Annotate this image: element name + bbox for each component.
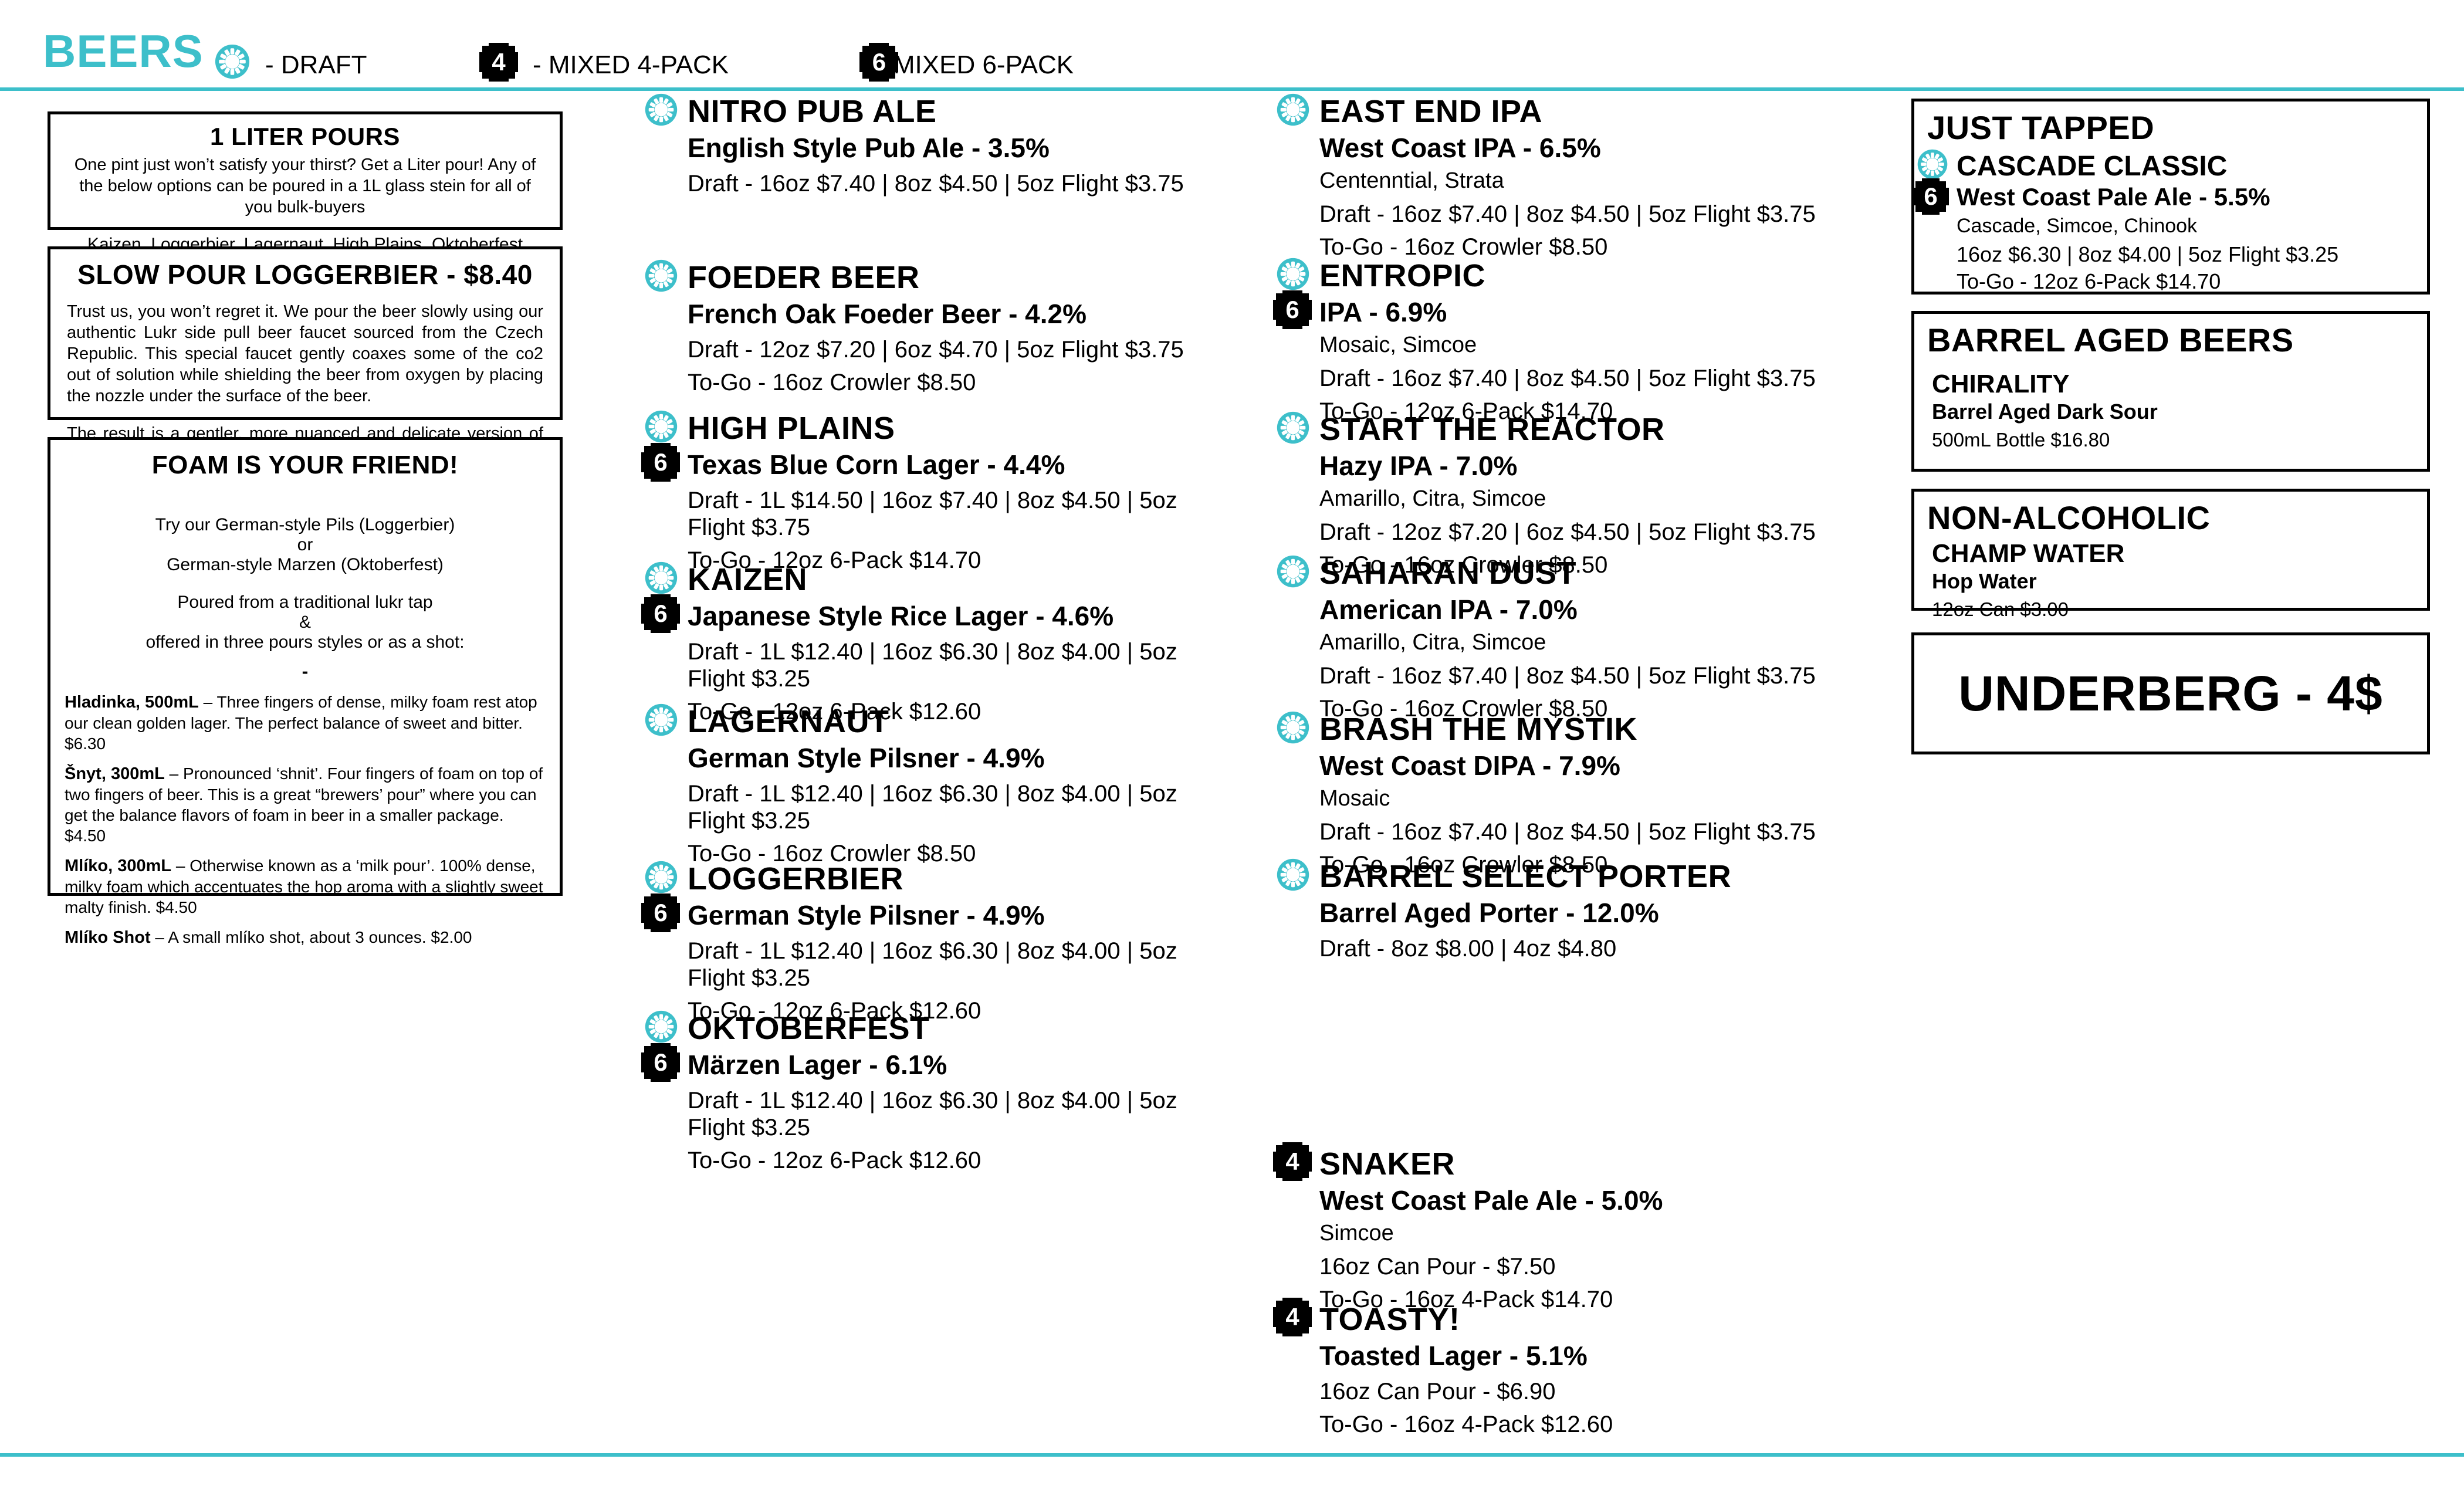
beer-name: NITRO PUB ALE [688,94,1207,129]
underberg-title: UNDERBERG - 4$ [1958,665,2382,722]
beer-price: Draft - 16oz $7.40 | 8oz $4.50 | 5oz Fli… [1319,818,1839,845]
header-divider [0,87,2464,91]
beer-style: Barrel Aged Dark Sour [1932,400,2158,424]
beer-style: Hop Water [1932,569,2124,594]
beer-name: EAST END IPA [1319,94,1839,129]
slow-pour-title: SLOW POUR LOGGERBIER - $8.40 [50,259,560,290]
beer-name: START THE REACTOR [1319,412,1839,447]
beer-item-champ-water: CHAMP WATER Hop Water 12oz Can $3.00 [1932,540,2124,621]
beer-item-saharan-dust: SAHARAN DUST American IPA - 7.0% Amarill… [1276,556,1839,722]
one-liter-pours-body: One pint just won’t satisfy your thirst?… [66,154,544,218]
beer-price: 12oz Can $3.00 [1932,598,2124,621]
slow-pour-paragraph-1: Trust us, you won’t regret it. We pour t… [67,301,543,407]
beer-hops: Amarillo, Citra, Simcoe [1319,486,1839,512]
beer-name: TOASTY! [1319,1302,1839,1337]
beer-name: FOEDER BEER [688,260,1207,295]
beer-style: English Style Pub Ale - 3.5% [688,133,1207,163]
just-tapped-box: JUST TAPPED 6 CASCADE CLASSIC West Coast… [1911,99,2430,295]
mixed-4-pack-badge-icon: 4 [482,46,515,79]
pour-style-hladinka: Hladinka, 500mL – Three fingers of dense… [65,692,546,754]
mixed-6-pack-badge-icon: 6 [1915,181,1946,212]
beer-style: American IPA - 7.0% [1319,594,1839,625]
beer-name: OKTOBERFEST [688,1011,1207,1046]
beer-item-oktoberfest: 6 OKTOBERFEST Märzen Lager - 6.1% Draft … [644,1011,1207,1174]
beer-style: West Coast IPA - 6.5% [1319,133,1839,163]
beer-name: ENTROPIC [1319,258,1839,293]
beer-style: West Coast Pale Ale - 5.5% [1957,184,2414,211]
beer-name: LOGGERBIER [688,861,1207,896]
mixed-6-pack-badge-icon: 6 [644,446,677,479]
barrel-aged-beers-title: BARREL AGED BEERS [1927,321,2427,359]
beer-price: Draft - 1L $12.40 | 16oz $6.30 | 8oz $4.… [688,780,1207,834]
foam-box: FOAM IS YOUR FRIEND! Try our German-styl… [48,437,563,896]
beer-item-start-the-reactor: START THE REACTOR Hazy IPA - 7.0% Amaril… [1276,412,1839,578]
mixed-6-pack-badge-icon: 6 [644,896,677,929]
pour-style-mliko-shot: Mlíko Shot – A small mlíko shot, about 3… [65,927,546,948]
beer-menu-board: BEERS - DRAFT 4 - MIXED 4-PACK 6 - MIXED… [0,0,2464,1496]
beer-hops: Amarillo, Citra, Simcoe [1319,629,1839,655]
beer-style: Barrel Aged Porter - 12.0% [1319,898,1839,928]
beer-price: Draft - 8oz $8.00 | 4oz $4.80 [1319,935,1839,962]
beer-price: 16oz $6.30 | 8oz $4.00 | 5oz Flight $3.2… [1957,242,2414,267]
legend-draft-label: - DRAFT [265,50,367,80]
beer-name: CASCADE CLASSIC [1957,151,2414,182]
beer-togo-price: To-Go - 12oz 6-Pack $12.60 [688,1147,1207,1174]
beer-price: Draft - 1L $14.50 | 16oz $7.40 | 8oz $4.… [688,487,1207,541]
foam-line-5: & [50,612,560,632]
beer-price: Draft - 1L $12.40 | 16oz $6.30 | 8oz $4.… [688,638,1207,692]
beer-price: Draft - 1L $12.40 | 16oz $6.30 | 8oz $4.… [688,1087,1207,1141]
mixed-6-pack-badge-icon: 6 [1276,293,1309,326]
beer-style: Texas Blue Corn Lager - 4.4% [688,449,1207,480]
beer-item-east-end-ipa: EAST END IPA West Coast IPA - 6.5% Cente… [1276,94,1839,260]
beer-style: Märzen Lager - 6.1% [688,1050,1207,1080]
beer-name: SNAKER [1319,1146,1839,1182]
beer-hops: Mosaic [1319,786,1839,811]
beer-hops: Centenntial, Strata [1319,168,1839,194]
beer-togo-price: To-Go - 16oz 4-Pack $12.60 [1319,1411,1839,1438]
beer-style: Toasted Lager - 5.1% [1319,1341,1839,1371]
mixed-4-pack-badge-icon: 4 [1276,1145,1309,1178]
mixed-4-pack-badge-icon: 4 [1276,1301,1309,1333]
beer-item-nitro-pub-ale: NITRO PUB ALE English Style Pub Ale - 3.… [644,94,1207,197]
beer-hops: Mosaic, Simcoe [1319,332,1839,358]
beer-name: BARREL SELECT PORTER [1319,859,1839,894]
legend-mixed-4-pack-label: - MIXED 4-PACK [533,50,729,80]
beer-item-loggerbier: 6 LOGGERBIER German Style Pilsner - 4.9%… [644,861,1207,1024]
mixed-6-pack-badge-icon: 6 [644,597,677,630]
beer-item-chirality: CHIRALITY Barrel Aged Dark Sour 500mL Bo… [1932,370,2158,451]
beer-price: Draft - 12oz $7.20 | 6oz $4.50 | 5oz Fli… [1319,519,1839,546]
mixed-6-pack-badge-icon: 6 [644,1046,677,1079]
beer-style: French Oak Foeder Beer - 4.2% [688,299,1207,329]
beer-name: BRASH THE MYSTIK [1319,712,1839,747]
beer-item-snaker: 4 SNAKER West Coast Pale Ale - 5.0% Simc… [1276,1146,1839,1313]
beer-price: Draft - 16oz $7.40 | 8oz $4.50 | 5oz Fli… [1319,662,1839,689]
pour-style-snyt: Šnyt, 300mL – Pronounced ‘shnit’. Four f… [65,763,546,846]
beer-style: Hazy IPA - 7.0% [1319,451,1839,481]
beer-price: 16oz Can Pour - $7.50 [1319,1253,1839,1280]
beer-style: IPA - 6.9% [1319,297,1839,327]
beer-price: Draft - 16oz $7.40 | 8oz $4.50 | 5oz Fli… [1319,201,1839,228]
beer-item-barrel-select-porter: BARREL SELECT PORTER Barrel Aged Porter … [1276,859,1839,962]
legend-mixed-6-pack-label: - MIXED 6-PACK [878,50,1074,80]
beer-togo-price: To-Go - 16oz Crowler $8.50 [688,369,1207,396]
slow-pour-box: SLOW POUR LOGGERBIER - $8.40 Trust us, y… [48,246,563,420]
beer-price: Draft - 12oz $7.20 | 6oz $4.70 | 5oz Fli… [688,336,1207,363]
foam-line-6: offered in three pours styles or as a sh… [50,632,560,652]
beer-name: LAGERNAUT [688,704,1207,739]
beer-style: German Style Pilsner - 4.9% [688,900,1207,930]
page-title: BEERS [43,25,204,78]
beer-price: Draft - 16oz $7.40 | 8oz $4.50 | 5oz Fli… [688,170,1207,197]
footer-divider [0,1453,2464,1457]
one-liter-pours-box: 1 LITER POURS One pint just won’t satisf… [48,111,563,230]
beer-togo-price: To-Go - 12oz 6-Pack $14.70 [1957,269,2414,294]
just-tapped-title: JUST TAPPED [1927,109,2427,147]
beer-name: CHIRALITY [1932,370,2158,398]
foam-pour-note: Poured from a traditional lukr tap & off… [50,593,560,652]
foam-dash: - [50,661,560,682]
pour-style-mliko: Mlíko, 300mL – Otherwise known as a ‘mil… [65,855,546,918]
non-alcoholic-title: NON-ALCOHOLIC [1927,499,2427,537]
beer-name: KAIZEN [688,562,1207,597]
beer-style: Japanese Style Rice Lager - 4.6% [688,601,1207,631]
barrel-aged-beers-box: BARREL AGED BEERS CHIRALITY Barrel Aged … [1911,311,2430,472]
beer-togo-price: To-Go - 16oz Crowler $8.50 [1319,233,1839,260]
beer-hops: Cascade, Simcoe, Chinook [1957,214,2414,238]
beer-name: SAHARAN DUST [1319,556,1839,591]
foam-intro: Try our German-style Pils (Loggerbier) o… [50,515,560,575]
beer-price: Draft - 16oz $7.40 | 8oz $4.50 | 5oz Fli… [1319,365,1839,392]
foam-title: FOAM IS YOUR FRIEND! [50,451,560,480]
beer-style: German Style Pilsner - 4.9% [688,743,1207,773]
beer-item-high-plains: 6 HIGH PLAINS Texas Blue Corn Lager - 4.… [644,411,1207,574]
one-liter-pours-title: 1 LITER POURS [50,123,560,151]
beer-hops: Simcoe [1319,1220,1839,1246]
beer-name: CHAMP WATER [1932,540,2124,568]
beer-style: West Coast Pale Ale - 5.0% [1319,1185,1839,1216]
foam-line-1: Try our German-style Pils (Loggerbier) [50,515,560,535]
beer-item-foeder-beer: FOEDER BEER French Oak Foeder Beer - 4.2… [644,260,1207,396]
beer-price: Draft - 1L $12.40 | 16oz $6.30 | 8oz $4.… [688,937,1207,991]
foam-line-3: German-style Marzen (Oktoberfest) [50,555,560,575]
beer-item-brash-the-mystik: BRASH THE MYSTIK West Coast DIPA - 7.9% … [1276,712,1839,878]
beer-item-lagernaut: LAGERNAUT German Style Pilsner - 4.9% Dr… [644,704,1207,867]
beer-name: HIGH PLAINS [688,411,1207,446]
beer-item-toasty: 4 TOASTY! Toasted Lager - 5.1% 16oz Can … [1276,1302,1839,1438]
beer-price: 500mL Bottle $16.80 [1932,429,2158,451]
beer-price: 16oz Can Pour - $6.90 [1319,1378,1839,1405]
foam-line-4: Poured from a traditional lukr tap [50,593,560,612]
foam-line-2: or [50,535,560,555]
underberg-box: UNDERBERG - 4$ [1911,632,2430,754]
beer-item-cascade-classic: 6 CASCADE CLASSIC West Coast Pale Ale - … [1919,151,2414,294]
non-alcoholic-box: NON-ALCOHOLIC CHAMP WATER Hop Water 12oz… [1911,489,2430,611]
draft-icon [214,43,251,80]
beer-style: West Coast DIPA - 7.9% [1319,750,1839,781]
beer-item-entropic: 6 ENTROPIC IPA - 6.9% Mosaic, Simcoe Dra… [1276,258,1839,425]
beer-item-kaizen: 6 KAIZEN Japanese Style Rice Lager - 4.6… [644,562,1207,725]
